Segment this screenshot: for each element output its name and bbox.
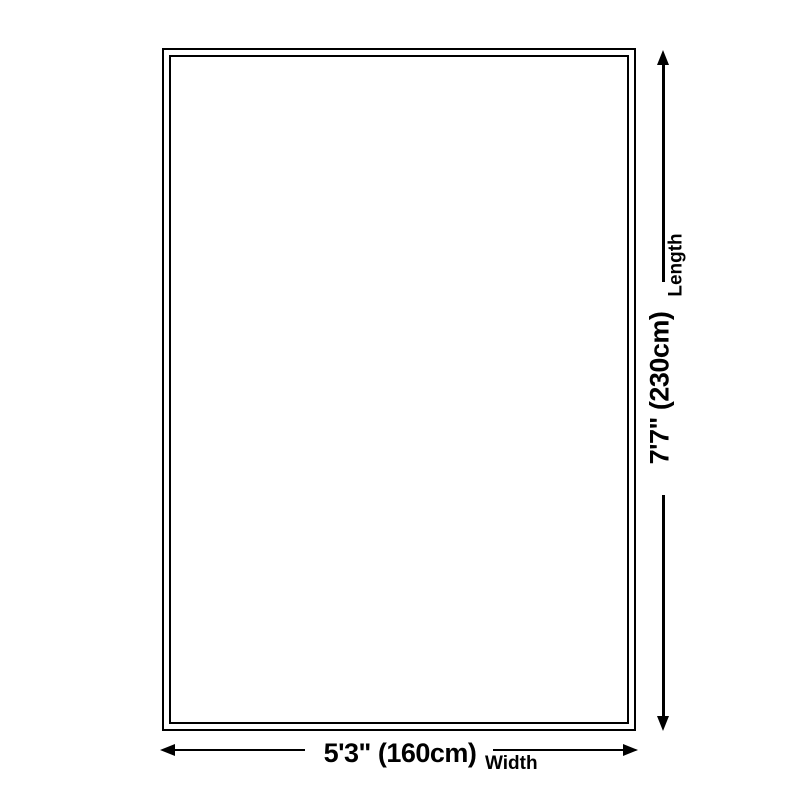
rug-outline-outer [162, 48, 636, 731]
dimension-diagram: 5'3" (160cm) Width 7'7" (230cm) Length [0, 0, 800, 800]
length-dimension-value: 7'7" (230cm) [647, 312, 674, 465]
width-arrow-line-right [493, 749, 626, 752]
arrow-right-icon [623, 744, 638, 756]
rug-outline-inner [169, 55, 629, 724]
width-dimension-label: Width [485, 754, 538, 773]
length-dimension-label: Length [667, 233, 686, 296]
length-arrow-line-top [662, 64, 665, 282]
arrow-up-icon [657, 50, 669, 65]
width-arrow-line-left [173, 749, 305, 752]
width-dimension-value: 5'3" (160cm) [324, 740, 477, 767]
arrow-down-icon [657, 716, 669, 731]
length-arrow-line-bottom [662, 495, 665, 717]
